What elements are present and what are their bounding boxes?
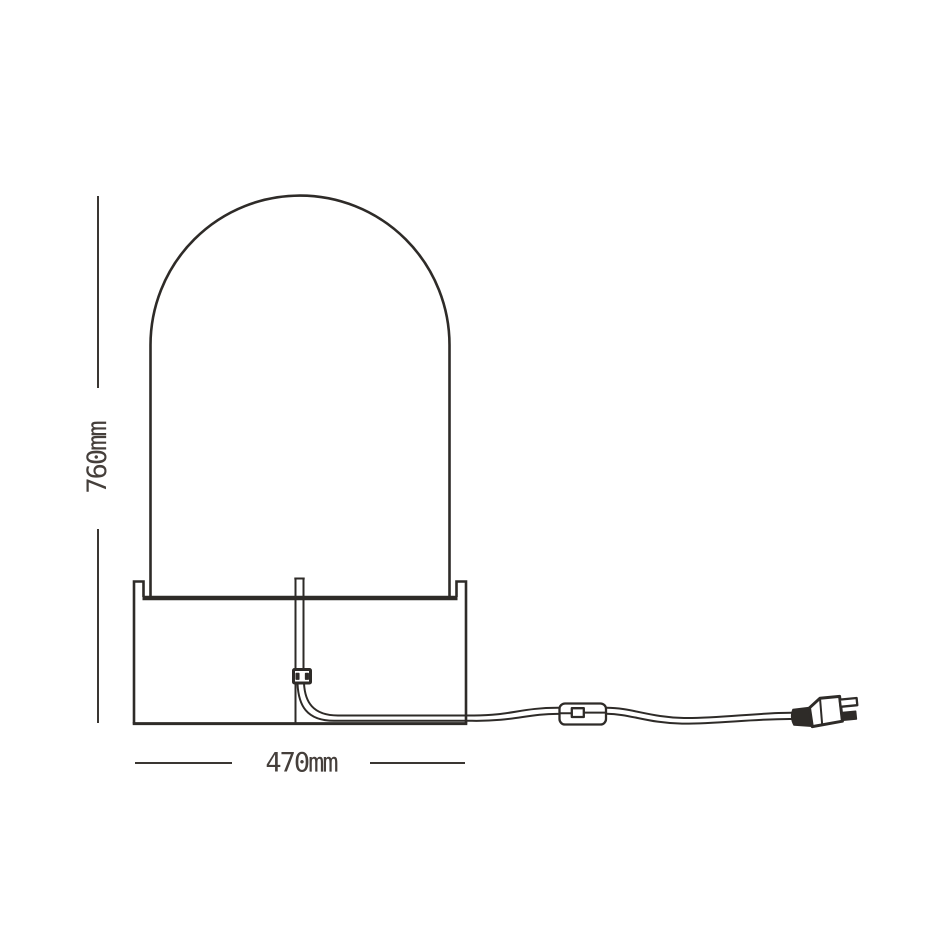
height-dimension: 760mm: [82, 196, 113, 723]
plug-body: [810, 696, 843, 726]
lamp-shade-arch: [151, 196, 450, 597]
socket-contact-left: [296, 674, 299, 680]
height-dim-label: 760mm: [82, 422, 113, 494]
cord-upper-line: [304, 684, 559, 716]
drawing-canvas: 760mm 470mm: [0, 0, 930, 930]
technical-drawing: 760mm 470mm: [0, 0, 930, 930]
width-dimension: 470mm: [135, 748, 465, 779]
base-left-wall: [134, 582, 144, 724]
socket-block: [294, 670, 311, 684]
switch-button: [572, 708, 584, 717]
shade-outline: [151, 196, 450, 597]
width-dim-label: 470mm: [265, 748, 337, 779]
power-cord: [298, 684, 794, 724]
inline-switch: [560, 704, 607, 725]
base-right-wall: [457, 582, 467, 724]
socket-contact-right: [306, 674, 309, 680]
plug-prong-top: [840, 698, 858, 707]
plug-prong-bottom: [841, 711, 856, 720]
power-plug: [792, 696, 858, 726]
